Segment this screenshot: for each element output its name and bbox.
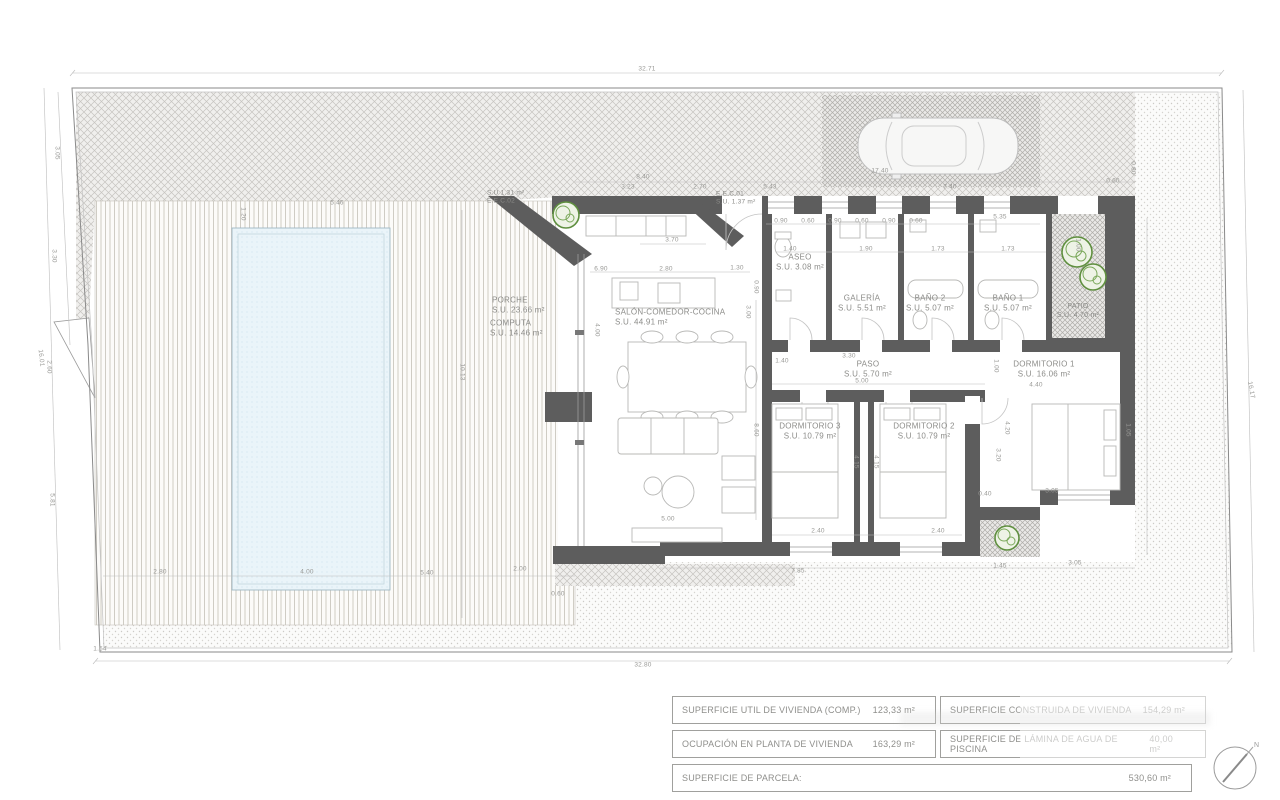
north-compass: N	[1205, 738, 1269, 798]
summary-value: 163,29 m²	[873, 739, 935, 749]
floor-plan-page: 32.7132.8016.0116.171.543.053.302.605.81…	[0, 0, 1280, 800]
summary-value: 530,60 m²	[1129, 773, 1191, 783]
summary-label: OCUPACIÓN EN PLANTA DE VIVIENDA	[673, 739, 853, 749]
summary-row-superficie-util: SUPERFICIE UTIL DE VIVIENDA (COMP.) 123,…	[672, 696, 936, 724]
summary-row-lamina-agua: SUPERFICIE DE LÁMINA DE AGUA DE PISCINA …	[940, 730, 1206, 758]
south-walkway	[555, 564, 795, 586]
summary-row-parcela: SUPERFICIE DE PARCELA: 530,60 m²	[672, 764, 1192, 792]
summary-value: 154,29 m²	[1143, 705, 1205, 715]
summary-label: SUPERFICIE DE LÁMINA DE AGUA DE PISCINA	[941, 734, 1149, 754]
pool	[232, 228, 390, 590]
compass-north-label: N	[1254, 742, 1259, 749]
summary-value: 123,33 m²	[873, 705, 935, 715]
floor-plan-drawing	[0, 0, 1280, 800]
summary-label: SUPERFICIE UTIL DE VIVIENDA (COMP.)	[673, 705, 861, 715]
summary-label: SUPERFICIE CONSTRUIDA DE VIVIENDA	[941, 705, 1132, 715]
summary-value: 40,00 m²	[1149, 734, 1205, 754]
car-icon	[858, 113, 1018, 179]
summary-row-superficie-construida: SUPERFICIE CONSTRUIDA DE VIVIENDA 154,29…	[940, 696, 1206, 724]
summary-label: SUPERFICIE DE PARCELA:	[673, 773, 802, 783]
summary-row-ocupacion: OCUPACIÓN EN PLANTA DE VIVIENDA 163,29 m…	[672, 730, 936, 758]
